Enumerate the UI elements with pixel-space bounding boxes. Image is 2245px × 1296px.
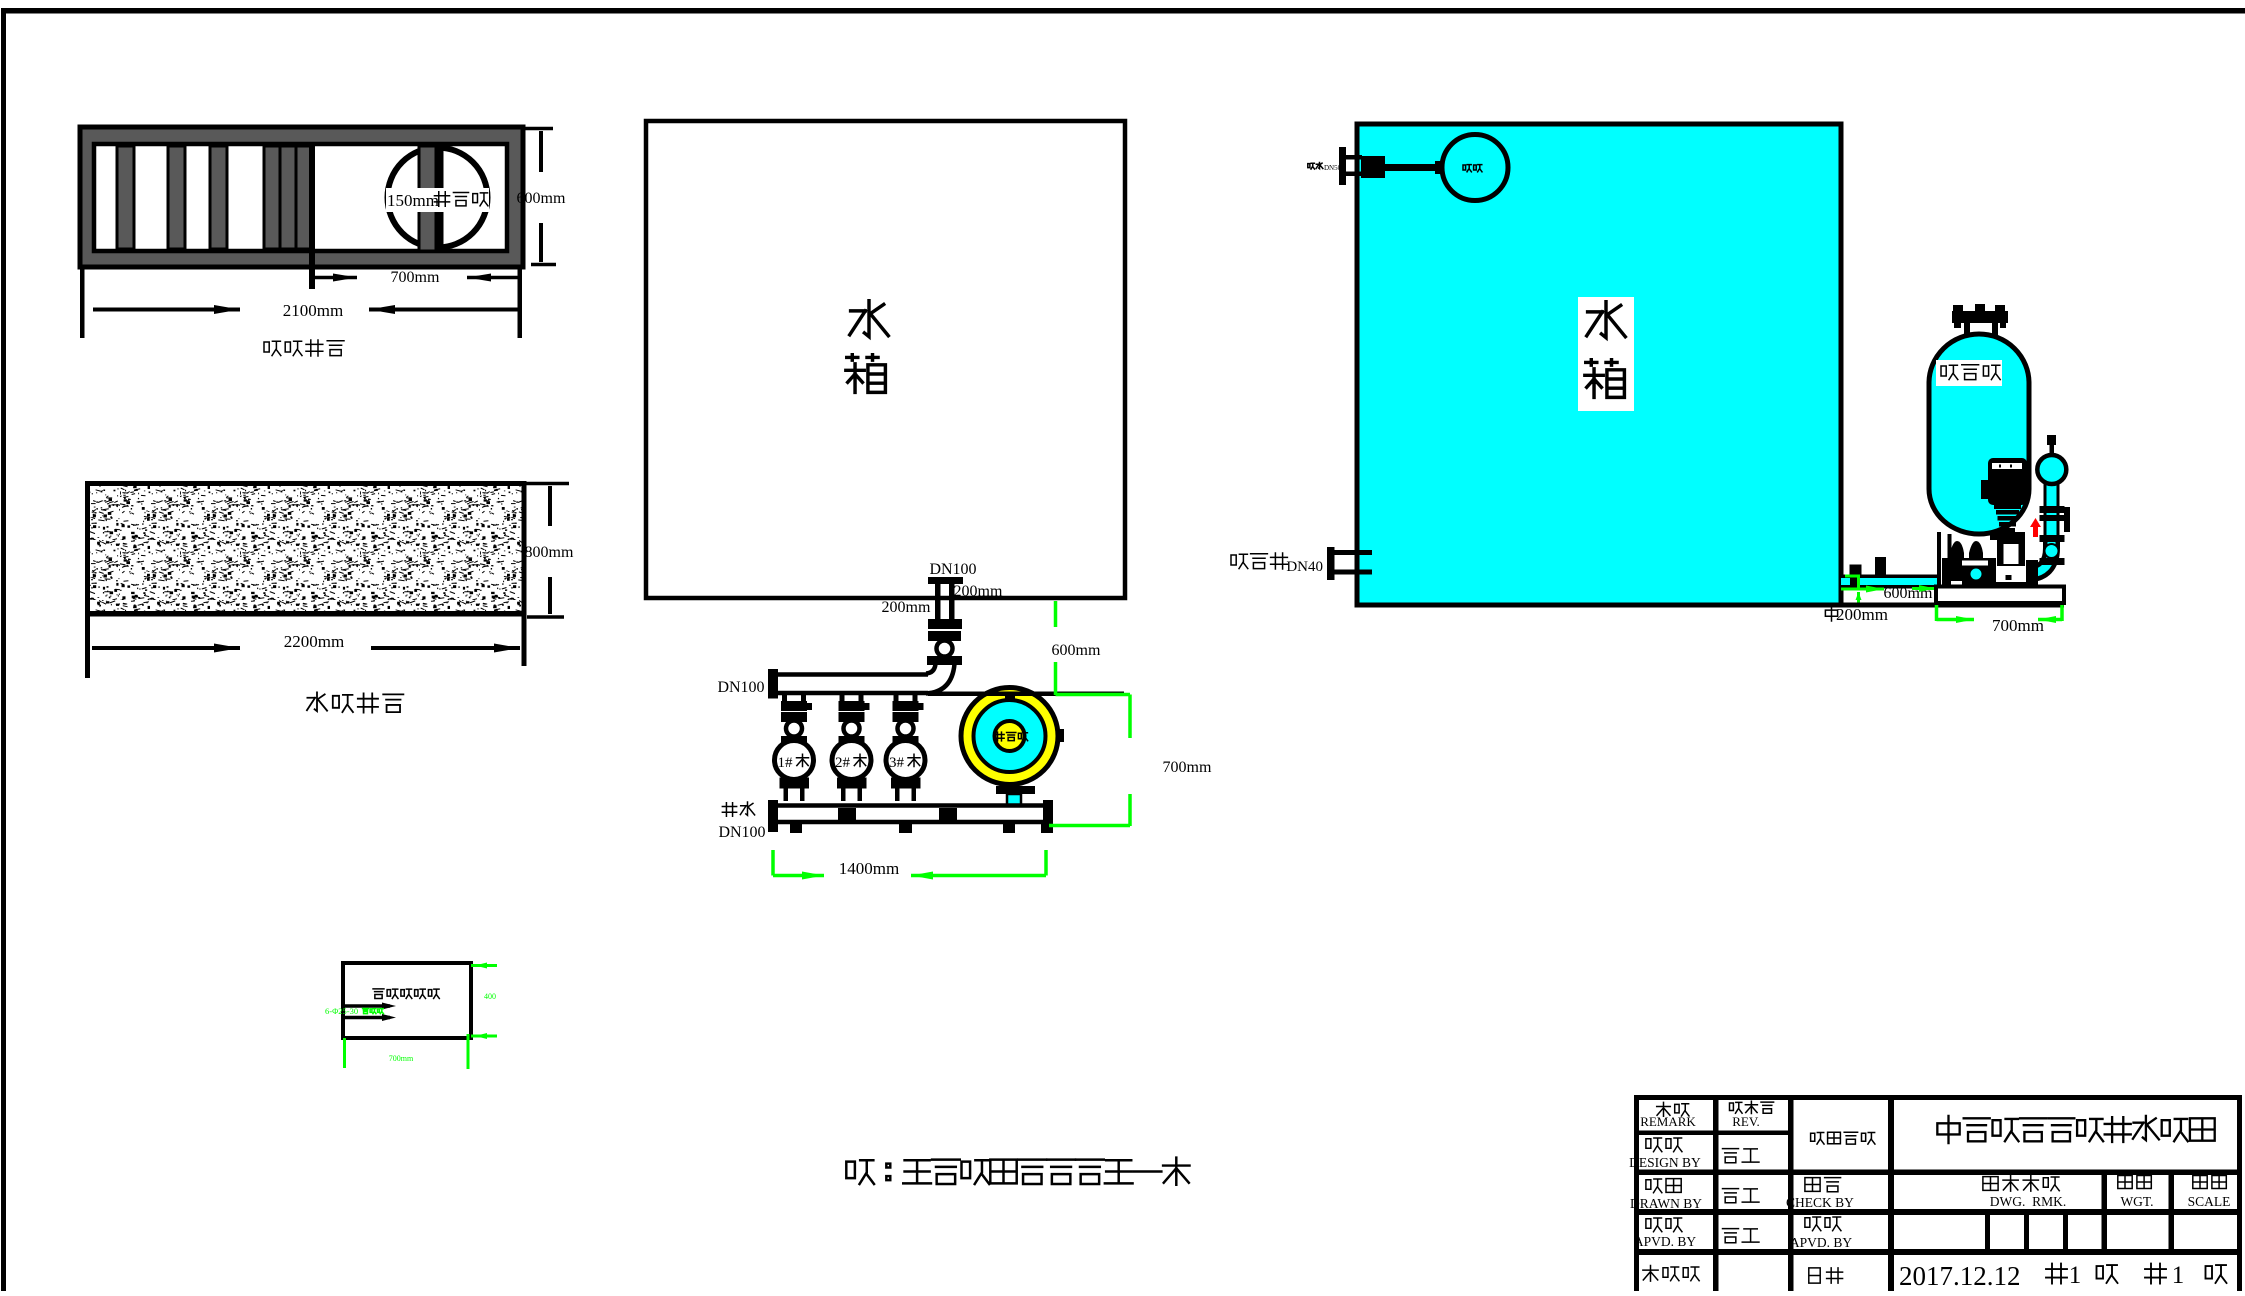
svg-text:150mm: 150mm bbox=[387, 191, 439, 210]
svg-text:2#: 2# bbox=[835, 755, 851, 771]
svg-text:6-Φ25-30: 6-Φ25-30 bbox=[325, 1006, 358, 1016]
svg-text:700mm: 700mm bbox=[1163, 759, 1212, 776]
svg-text:DWG. RMK.: DWG. RMK. bbox=[1990, 1194, 2067, 1209]
svg-text:DN40: DN40 bbox=[1286, 559, 1323, 575]
svg-text:2017.12.12: 2017.12.12 bbox=[1899, 1261, 2021, 1291]
svg-text:SCALE: SCALE bbox=[2188, 1194, 2231, 1209]
svg-text:APVD. BY: APVD. BY bbox=[1634, 1234, 1697, 1249]
svg-text:DN50: DN50 bbox=[1324, 164, 1342, 172]
svg-text:1400mm: 1400mm bbox=[839, 859, 899, 878]
svg-text:200mm: 200mm bbox=[954, 583, 1003, 600]
svg-text:600mm: 600mm bbox=[517, 190, 566, 207]
svg-text:2100mm: 2100mm bbox=[283, 301, 343, 320]
svg-text:700mm: 700mm bbox=[389, 1054, 414, 1063]
svg-text:700mm: 700mm bbox=[391, 269, 440, 286]
svg-text:DESIGN BY: DESIGN BY bbox=[1629, 1155, 1701, 1170]
svg-text:1: 1 bbox=[2069, 1262, 2082, 1289]
svg-text:CHECK BY: CHECK BY bbox=[1786, 1195, 1854, 1210]
svg-text:2200mm: 2200mm bbox=[284, 632, 344, 651]
svg-text:DRAWN BY: DRAWN BY bbox=[1630, 1196, 1702, 1211]
svg-text:600mm: 600mm bbox=[1052, 642, 1101, 659]
svg-text:1: 1 bbox=[2172, 1262, 2185, 1289]
svg-text:200mm: 200mm bbox=[882, 599, 931, 616]
svg-text:DN100: DN100 bbox=[718, 824, 765, 841]
svg-text:DN100: DN100 bbox=[717, 679, 764, 696]
svg-text:REMARK: REMARK bbox=[1640, 1114, 1696, 1129]
svg-text:APVD. BY: APVD. BY bbox=[1790, 1235, 1853, 1250]
svg-text:1#: 1# bbox=[778, 755, 794, 771]
svg-text:3#: 3# bbox=[889, 755, 905, 771]
svg-text:REV.: REV. bbox=[1732, 1114, 1760, 1129]
svg-text:700mm: 700mm bbox=[1992, 616, 2044, 635]
svg-text:800mm: 800mm bbox=[525, 544, 574, 561]
svg-text:200mm: 200mm bbox=[1836, 605, 1888, 624]
svg-text:400: 400 bbox=[484, 992, 496, 1001]
svg-text:WGT.: WGT. bbox=[2120, 1194, 2153, 1209]
svg-text:DN100: DN100 bbox=[929, 561, 976, 578]
